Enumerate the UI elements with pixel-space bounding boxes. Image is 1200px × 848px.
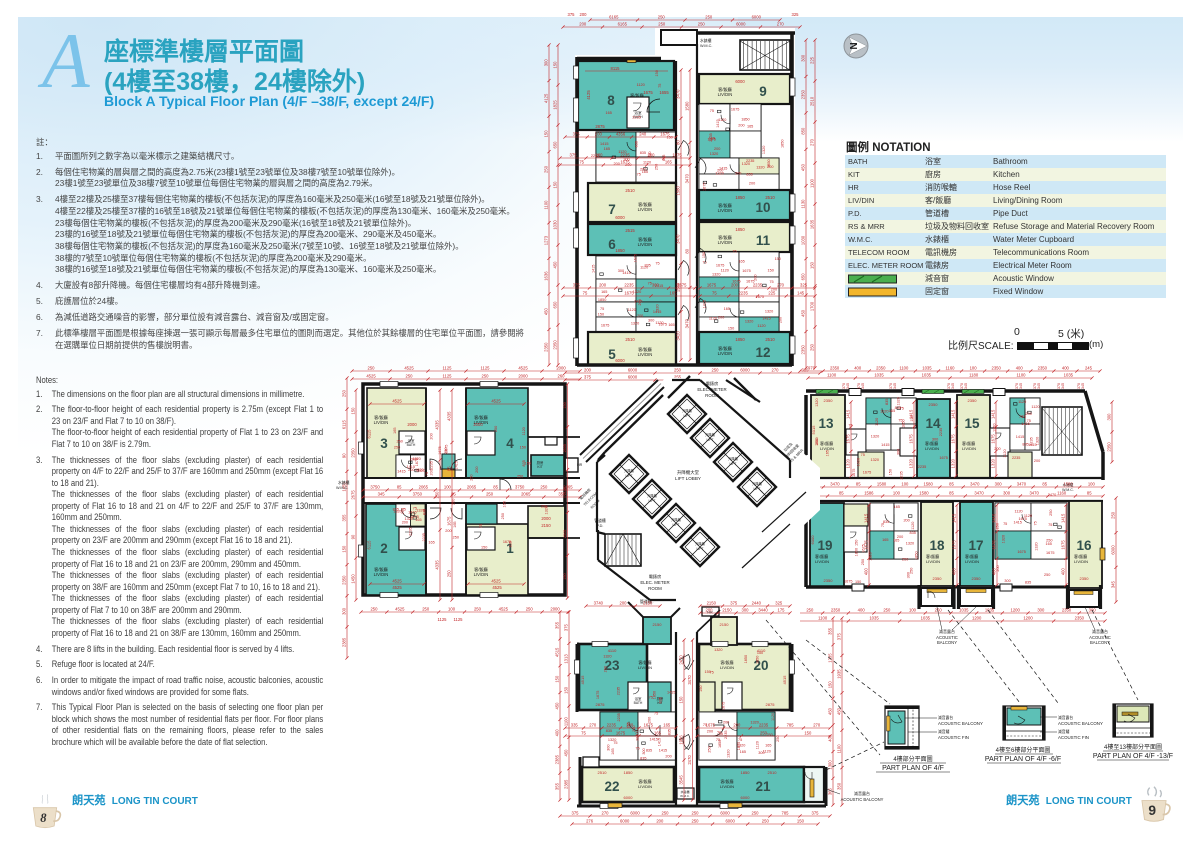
svg-text:1850: 1850 <box>735 227 745 232</box>
svg-text:300: 300 <box>1003 491 1011 496</box>
svg-text:250: 250 <box>752 811 760 816</box>
svg-text:150: 150 <box>342 545 347 553</box>
svg-text:250: 250 <box>368 366 376 371</box>
svg-text:100: 100 <box>893 491 901 496</box>
svg-text:250: 250 <box>447 570 452 578</box>
svg-text:1415: 1415 <box>659 748 667 752</box>
svg-text:3470: 3470 <box>685 318 690 328</box>
svg-text:減音露台: 減音露台 <box>939 628 955 634</box>
svg-text:2515: 2515 <box>625 228 635 233</box>
svg-text:6000: 6000 <box>615 215 625 220</box>
svg-text:1035: 1035 <box>874 373 884 378</box>
svg-text:2235: 2235 <box>409 527 413 535</box>
svg-text:150: 150 <box>666 135 672 139</box>
svg-text:250: 250 <box>806 608 814 613</box>
svg-text:2350: 2350 <box>553 340 558 350</box>
svg-text:1675: 1675 <box>624 291 634 296</box>
svg-text:1415: 1415 <box>951 409 956 419</box>
svg-text:1320: 1320 <box>710 152 718 156</box>
svg-text:2000: 2000 <box>556 366 566 371</box>
svg-text:2385: 2385 <box>564 779 569 789</box>
svg-text:165: 165 <box>738 259 744 263</box>
svg-text:345: 345 <box>1061 383 1065 389</box>
svg-text:6000: 6000 <box>736 22 746 27</box>
svg-text:1120: 1120 <box>1003 449 1007 457</box>
svg-text:2150: 2150 <box>720 622 730 627</box>
svg-text:200: 200 <box>733 723 741 728</box>
svg-text:1320: 1320 <box>404 517 412 521</box>
svg-text:1100: 1100 <box>810 178 815 188</box>
svg-text:1415: 1415 <box>408 511 416 515</box>
svg-text:3750: 3750 <box>515 485 525 490</box>
svg-text:1120: 1120 <box>640 266 648 270</box>
svg-text:355: 355 <box>342 514 347 522</box>
svg-text:1120: 1120 <box>628 308 636 312</box>
svg-text:6115: 6115 <box>367 540 372 550</box>
svg-text:75: 75 <box>702 261 706 265</box>
svg-text:LIV/DIN: LIV/DIN <box>718 351 733 356</box>
svg-text:150: 150 <box>351 407 356 415</box>
svg-text:1120: 1120 <box>522 427 526 435</box>
svg-text:LIFT: LIFT <box>673 523 680 527</box>
svg-text:1675: 1675 <box>846 434 851 444</box>
svg-text:200: 200 <box>429 469 433 475</box>
svg-text:785: 785 <box>787 723 795 728</box>
svg-text:1850: 1850 <box>780 140 784 148</box>
svg-text:水錶櫃: 水錶櫃 <box>700 38 712 43</box>
svg-text:300: 300 <box>623 157 629 161</box>
svg-text:1100: 1100 <box>564 716 569 726</box>
svg-text:12: 12 <box>755 345 770 360</box>
svg-text:200: 200 <box>718 316 724 320</box>
svg-text:1320: 1320 <box>608 738 616 742</box>
svg-text:1125: 1125 <box>437 617 447 622</box>
svg-text:250: 250 <box>422 607 430 612</box>
svg-text:1675: 1675 <box>1018 517 1026 521</box>
svg-text:175: 175 <box>778 608 786 613</box>
svg-text:325: 325 <box>775 601 783 606</box>
svg-text:1125: 1125 <box>453 617 463 622</box>
svg-text:250: 250 <box>705 15 713 20</box>
svg-text:3545: 3545 <box>679 775 684 785</box>
svg-text:2675: 2675 <box>351 490 356 500</box>
svg-text:1320: 1320 <box>745 320 753 324</box>
svg-text:2385: 2385 <box>342 637 347 647</box>
svg-text:250: 250 <box>658 22 666 27</box>
svg-text:LIFT LOBBY: LIFT LOBBY <box>675 476 701 481</box>
svg-text:355: 355 <box>555 782 560 790</box>
svg-text:1850: 1850 <box>854 548 858 556</box>
svg-text:375: 375 <box>584 375 592 380</box>
svg-text:4525: 4525 <box>392 399 402 404</box>
svg-text:16: 16 <box>1076 538 1092 553</box>
svg-text:375: 375 <box>812 811 820 816</box>
svg-text:6165: 6165 <box>609 15 619 20</box>
svg-text:1120: 1120 <box>643 160 651 164</box>
svg-text:85: 85 <box>1087 491 1092 496</box>
svg-text:165: 165 <box>611 748 615 754</box>
svg-text:75: 75 <box>600 307 604 311</box>
svg-text:260: 260 <box>558 374 566 379</box>
svg-text:1320: 1320 <box>417 469 425 473</box>
svg-text:1120: 1120 <box>763 749 771 753</box>
svg-text:1160: 1160 <box>945 366 955 371</box>
svg-text:835: 835 <box>1025 580 1031 584</box>
svg-text:LIFT: LIFT <box>684 414 691 418</box>
svg-text:85: 85 <box>856 482 861 487</box>
svg-text:2000: 2000 <box>550 607 560 612</box>
svg-text:200: 200 <box>648 151 652 157</box>
svg-text:2510: 2510 <box>598 770 608 775</box>
svg-text:LIV/DIN: LIV/DIN <box>720 784 734 789</box>
svg-text:270: 270 <box>772 368 780 373</box>
svg-text:1675: 1675 <box>1046 551 1054 555</box>
svg-text:75: 75 <box>881 523 885 527</box>
svg-text:240: 240 <box>639 132 647 137</box>
svg-text:2350: 2350 <box>830 366 840 371</box>
svg-text:1635: 1635 <box>810 219 815 229</box>
svg-text:1675: 1675 <box>731 107 739 111</box>
svg-text:1450: 1450 <box>351 574 356 584</box>
svg-text:1035: 1035 <box>959 608 969 613</box>
svg-text:325: 325 <box>800 283 808 288</box>
svg-text:1675: 1675 <box>706 723 716 728</box>
svg-text:1580: 1580 <box>924 482 934 487</box>
svg-text:4125: 4125 <box>544 93 549 103</box>
svg-text:1320: 1320 <box>603 655 611 659</box>
svg-text:1986: 1986 <box>679 735 684 745</box>
svg-text:300: 300 <box>544 59 549 67</box>
svg-text:250: 250 <box>394 445 400 449</box>
svg-text:2: 2 <box>380 541 388 556</box>
svg-text:1320: 1320 <box>846 458 851 468</box>
svg-text:ACOUSTIC BALCONY: ACOUSTIC BALCONY <box>841 797 884 802</box>
svg-text:1850: 1850 <box>755 656 759 664</box>
svg-text:3470: 3470 <box>974 491 984 496</box>
svg-text:1120: 1120 <box>875 418 879 426</box>
svg-text:835: 835 <box>423 509 427 515</box>
svg-text:1415: 1415 <box>702 300 706 308</box>
svg-text:1586: 1586 <box>864 491 874 496</box>
svg-text:1825: 1825 <box>553 100 558 110</box>
svg-text:400: 400 <box>828 734 833 742</box>
svg-text:400: 400 <box>555 729 560 737</box>
svg-text:2350: 2350 <box>351 448 356 458</box>
svg-text:1320: 1320 <box>815 398 819 406</box>
svg-text:85: 85 <box>1042 482 1047 487</box>
svg-text:150: 150 <box>553 61 558 69</box>
svg-text:2875: 2875 <box>596 702 606 707</box>
svg-text:2510: 2510 <box>625 337 635 342</box>
svg-text:200: 200 <box>735 172 741 176</box>
svg-text:250: 250 <box>655 164 659 170</box>
svg-text:300: 300 <box>606 745 610 751</box>
svg-text:650: 650 <box>553 301 558 309</box>
svg-text:減音鰭: 減音鰭 <box>938 729 950 734</box>
svg-text:1415: 1415 <box>591 265 595 273</box>
svg-text:6000: 6000 <box>720 811 730 816</box>
svg-text:4525: 4525 <box>404 366 414 371</box>
svg-text:1415: 1415 <box>397 470 405 474</box>
svg-text:1320: 1320 <box>544 506 548 514</box>
svg-text:1675: 1675 <box>703 183 707 191</box>
svg-text:3470: 3470 <box>1017 482 1027 487</box>
svg-text:1580: 1580 <box>1063 482 1073 487</box>
svg-text:835: 835 <box>662 155 666 161</box>
svg-text:LIV/DIN: LIV/DIN <box>965 559 979 564</box>
svg-text:水錶櫃: 水錶櫃 <box>338 480 350 485</box>
svg-text:1415: 1415 <box>719 167 727 171</box>
svg-text:2350: 2350 <box>544 342 549 352</box>
svg-text:835: 835 <box>658 697 662 703</box>
svg-text:270: 270 <box>777 22 785 27</box>
svg-text:1415: 1415 <box>1061 513 1066 523</box>
svg-text:ELEC. METER: ELEC. METER <box>640 580 669 585</box>
svg-text:200: 200 <box>706 608 714 613</box>
svg-text:LIV/DIN: LIV/DIN <box>374 572 389 577</box>
svg-text:2000: 2000 <box>407 422 417 427</box>
svg-text:1320: 1320 <box>765 310 773 314</box>
svg-text:450: 450 <box>544 308 549 316</box>
svg-text:1850: 1850 <box>744 655 748 663</box>
svg-text:335: 335 <box>571 723 579 728</box>
svg-text:18: 18 <box>929 538 945 553</box>
svg-text:250: 250 <box>712 368 720 373</box>
svg-text:835: 835 <box>640 756 646 760</box>
svg-text:4335: 4335 <box>435 560 440 570</box>
svg-text:1850: 1850 <box>815 437 819 445</box>
svg-text:21: 21 <box>755 779 771 794</box>
svg-text:4樓至13樓部分平面圖: 4樓至13樓部分平面圖 <box>1104 743 1162 751</box>
svg-text:1120: 1120 <box>911 522 915 530</box>
svg-text:250: 250 <box>708 746 712 752</box>
svg-text:1415: 1415 <box>846 409 851 419</box>
svg-text:270: 270 <box>589 723 597 728</box>
svg-text:75: 75 <box>861 453 865 457</box>
svg-text:1675: 1675 <box>716 264 724 268</box>
svg-text:2235: 2235 <box>617 687 621 695</box>
svg-text:165: 165 <box>663 723 671 728</box>
svg-text:250: 250 <box>444 448 448 454</box>
svg-text:8115: 8115 <box>610 66 620 71</box>
svg-text:6000: 6000 <box>628 375 638 380</box>
svg-text:75: 75 <box>654 712 658 716</box>
svg-text:200: 200 <box>599 283 607 288</box>
svg-text:4樓至6樓部分平面圖: 4樓至6樓部分平面圖 <box>996 746 1051 754</box>
svg-text:4525: 4525 <box>366 374 376 379</box>
svg-text:ACOUSTIC FIN: ACOUSTIC FIN <box>938 735 969 740</box>
svg-text:100: 100 <box>970 366 978 371</box>
svg-text:11: 11 <box>756 233 771 248</box>
svg-text:250: 250 <box>526 607 534 612</box>
svg-text:400: 400 <box>854 366 862 371</box>
svg-text:1675: 1675 <box>1061 540 1066 550</box>
svg-text:LIFT: LIFT <box>707 438 714 442</box>
svg-text:250: 250 <box>1046 539 1052 543</box>
svg-text:3470: 3470 <box>830 482 840 487</box>
svg-text:1120: 1120 <box>618 150 626 154</box>
svg-text:250: 250 <box>1111 511 1116 519</box>
svg-text:75: 75 <box>712 291 717 296</box>
svg-text:345: 345 <box>1111 581 1116 589</box>
svg-text:970: 970 <box>808 366 816 371</box>
svg-text:2065: 2065 <box>419 485 429 490</box>
svg-text:3470: 3470 <box>687 675 692 685</box>
svg-text:1580: 1580 <box>919 491 929 496</box>
svg-text:1415: 1415 <box>634 299 642 303</box>
svg-text:85: 85 <box>493 485 498 490</box>
svg-text:2510: 2510 <box>768 770 778 775</box>
svg-text:1035: 1035 <box>922 373 932 378</box>
svg-text:1120: 1120 <box>771 713 775 721</box>
svg-text:400: 400 <box>1062 366 1070 371</box>
svg-text:200: 200 <box>779 317 783 323</box>
svg-text:450: 450 <box>553 261 558 269</box>
svg-text:165: 165 <box>894 505 900 509</box>
svg-text:4125: 4125 <box>586 90 591 100</box>
svg-text:1100: 1100 <box>827 373 837 378</box>
svg-text:75: 75 <box>1003 522 1007 526</box>
svg-text:200: 200 <box>614 162 620 166</box>
svg-text:3470: 3470 <box>970 482 980 487</box>
svg-text:150: 150 <box>555 675 560 683</box>
svg-text:1675: 1675 <box>596 691 600 699</box>
svg-text:1850: 1850 <box>767 159 771 167</box>
svg-text:1120: 1120 <box>757 324 765 328</box>
svg-text:300: 300 <box>1089 608 1097 613</box>
svg-text:1850: 1850 <box>741 118 749 122</box>
svg-text:1675: 1675 <box>939 456 947 460</box>
svg-text:13: 13 <box>818 416 834 431</box>
svg-text:升降機大堂: 升降機大堂 <box>677 469 700 476</box>
svg-text:1035: 1035 <box>869 616 879 621</box>
svg-text:2350: 2350 <box>1107 442 1112 452</box>
svg-text:1415: 1415 <box>864 513 869 523</box>
svg-text:250: 250 <box>486 492 494 497</box>
svg-text:325: 325 <box>792 12 800 17</box>
svg-text:6000: 6000 <box>624 795 634 800</box>
svg-text:7140: 7140 <box>563 487 567 495</box>
svg-text:150: 150 <box>699 686 703 692</box>
svg-text:LIV/DIN: LIV/DIN <box>815 559 829 564</box>
svg-text:100: 100 <box>909 608 917 613</box>
svg-text:75: 75 <box>848 424 852 428</box>
svg-text:1120: 1120 <box>1018 400 1026 404</box>
svg-text:4515: 4515 <box>555 647 560 657</box>
svg-text:150: 150 <box>544 130 549 138</box>
svg-text:200: 200 <box>707 730 713 734</box>
svg-text:1030: 1030 <box>801 235 806 245</box>
svg-text:1675: 1675 <box>742 269 750 273</box>
svg-text:75: 75 <box>1033 521 1037 525</box>
svg-text:6000: 6000 <box>1111 545 1116 555</box>
svg-text:1320: 1320 <box>742 162 750 166</box>
svg-text:3: 3 <box>380 436 388 451</box>
svg-text:1120: 1120 <box>1015 510 1023 514</box>
svg-text:2350: 2350 <box>876 366 886 371</box>
svg-text:1100: 1100 <box>899 366 909 371</box>
svg-text:1200: 1200 <box>1011 608 1021 613</box>
svg-text:2000: 2000 <box>473 422 483 427</box>
svg-text:1320: 1320 <box>951 458 956 468</box>
svg-text:200: 200 <box>430 433 434 439</box>
svg-text:150: 150 <box>810 261 815 269</box>
svg-text:250: 250 <box>474 607 482 612</box>
svg-text:1415: 1415 <box>454 461 458 469</box>
svg-text:3470: 3470 <box>1029 491 1039 496</box>
svg-text:2440: 2440 <box>752 601 762 606</box>
svg-text:LIV/DIN: LIV/DIN <box>638 665 652 670</box>
svg-text:2235: 2235 <box>591 154 599 158</box>
svg-text:1580: 1580 <box>685 101 690 111</box>
svg-text:1675: 1675 <box>447 516 452 526</box>
svg-text:LIV/DIN: LIV/DIN <box>1074 559 1088 564</box>
svg-text:6000: 6000 <box>810 535 815 545</box>
svg-text:345: 345 <box>1019 383 1023 389</box>
svg-text:150: 150 <box>553 181 558 189</box>
svg-text:1675: 1675 <box>991 434 996 444</box>
svg-text:1675: 1675 <box>951 434 956 444</box>
svg-text:1415: 1415 <box>658 738 662 746</box>
svg-text:245: 245 <box>1085 366 1093 371</box>
svg-text:1675: 1675 <box>952 540 957 550</box>
svg-text:785: 785 <box>782 811 790 816</box>
svg-text:2350: 2350 <box>1080 576 1090 581</box>
svg-text:W.M.C.: W.M.C. <box>336 486 348 490</box>
svg-text:165: 165 <box>724 307 730 311</box>
svg-text:2235: 2235 <box>624 283 634 288</box>
svg-text:75: 75 <box>581 731 586 736</box>
svg-text:LIFT: LIFT <box>730 462 737 466</box>
svg-text:1180: 1180 <box>969 373 979 378</box>
svg-text:1675: 1675 <box>721 702 725 710</box>
svg-text:1320: 1320 <box>857 458 861 466</box>
svg-text:W.M.C.: W.M.C. <box>680 794 690 798</box>
svg-text:1675: 1675 <box>601 323 609 327</box>
svg-text:2505: 2505 <box>563 444 567 452</box>
svg-text:450: 450 <box>828 707 833 715</box>
svg-text:LIV/DIN: LIV/DIN <box>718 92 733 97</box>
svg-text:250: 250 <box>692 811 700 816</box>
svg-text:減音露台: 減音露台 <box>854 790 870 796</box>
svg-text:1320: 1320 <box>991 458 996 468</box>
svg-text:300: 300 <box>995 482 1003 487</box>
svg-text:2235: 2235 <box>724 731 728 739</box>
svg-text:75: 75 <box>583 291 588 296</box>
svg-text:6115: 6115 <box>367 429 372 439</box>
svg-text:2510: 2510 <box>625 188 635 193</box>
svg-text:10: 10 <box>755 200 770 215</box>
svg-text:150: 150 <box>655 70 659 76</box>
svg-text:100: 100 <box>901 482 909 487</box>
svg-text:200: 200 <box>475 466 479 472</box>
svg-text:6000: 6000 <box>740 368 750 373</box>
svg-text:2000: 2000 <box>541 516 551 521</box>
svg-text:1320: 1320 <box>750 721 758 725</box>
svg-text:345: 345 <box>1037 383 1041 389</box>
svg-text:2150: 2150 <box>707 601 717 606</box>
svg-text:375: 375 <box>573 132 581 137</box>
svg-text:345: 345 <box>861 383 865 389</box>
svg-text:1935: 1935 <box>837 669 842 679</box>
svg-text:升降機: 升降機 <box>647 493 657 498</box>
svg-text:2150: 2150 <box>722 608 732 613</box>
svg-text:300: 300 <box>896 449 900 455</box>
svg-text:2235: 2235 <box>632 115 640 119</box>
svg-text:W.M.C.: W.M.C. <box>700 44 712 48</box>
svg-text:2235: 2235 <box>759 723 769 728</box>
svg-text:LIV/DIN: LIV/DIN <box>925 446 939 451</box>
